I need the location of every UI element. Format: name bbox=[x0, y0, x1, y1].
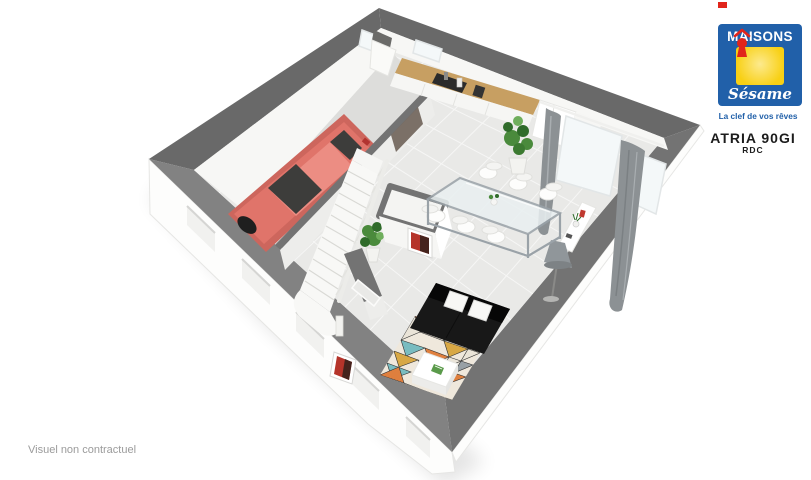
page-edge-red-mark bbox=[718, 2, 727, 8]
marketing-visual: MAISONS Sésame La clef de vos rêves ATRI… bbox=[0, 0, 811, 480]
console-decor bbox=[573, 221, 579, 227]
maisons-sesame-logo: MAISONS Sésame bbox=[718, 24, 802, 106]
keyhole-icon bbox=[736, 47, 784, 85]
logo-wordmark-sesame: Sésame bbox=[718, 85, 802, 103]
brand-tagline: La clef de vos rêves bbox=[706, 111, 810, 121]
model-name: ATRIA 90GI bbox=[698, 130, 808, 146]
newel-post bbox=[336, 316, 343, 336]
floorplan-3d bbox=[0, 0, 811, 480]
disclaimer-text: Visuel non contractuel bbox=[28, 444, 136, 456]
model-level: RDC bbox=[698, 145, 808, 155]
